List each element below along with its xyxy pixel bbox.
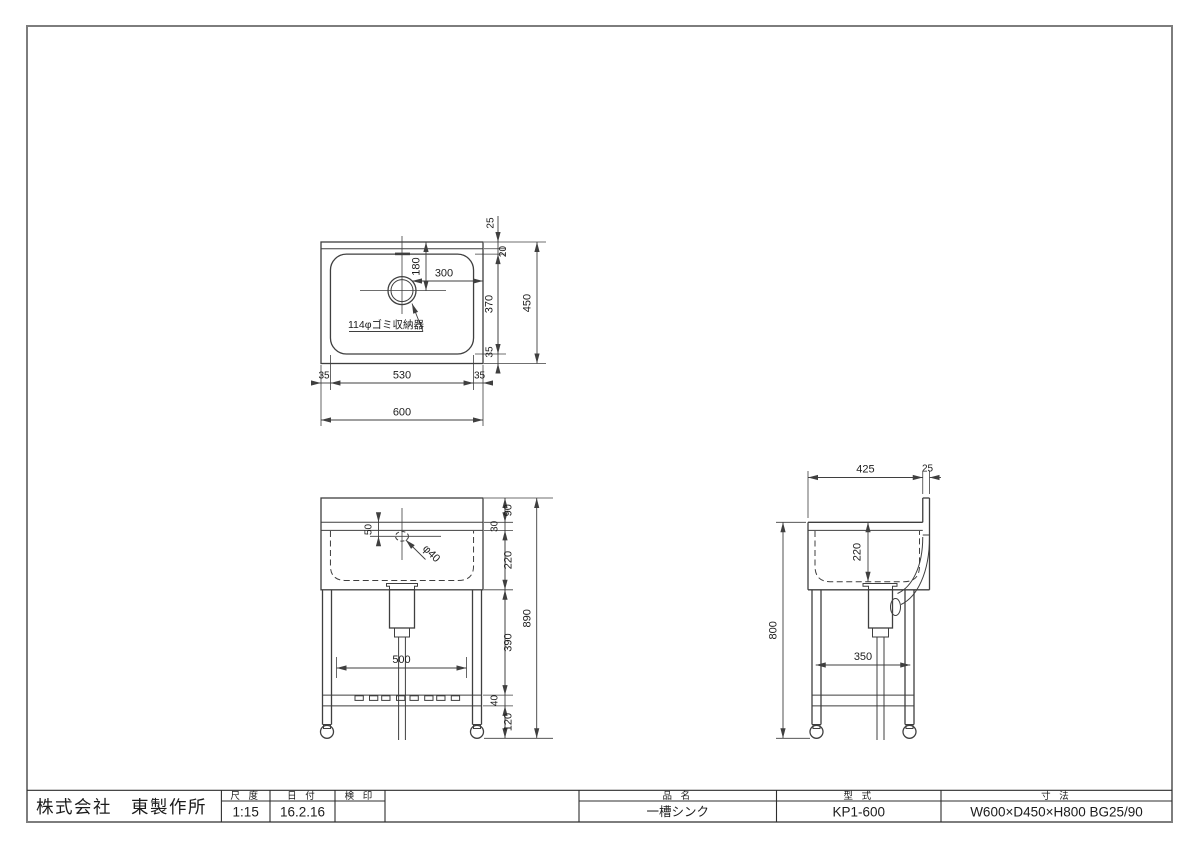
size-label: 寸 法 bbox=[1041, 790, 1072, 802]
top-view-dimensions: 180 300 25 20 370 35 450 bbox=[311, 216, 546, 426]
dim-35-chain: 35 bbox=[485, 346, 496, 358]
title-block: 株式会社 東製作所 尺 度 1:15 日 付 16.2.16 検 印 品 名 一… bbox=[27, 790, 1172, 822]
dim-530: 530 bbox=[393, 370, 411, 382]
side-view: 425 25 220 350 800 bbox=[768, 464, 942, 741]
caster-front-left bbox=[321, 725, 334, 738]
dim-890: 890 bbox=[522, 609, 534, 627]
dim-180: 180 bbox=[411, 257, 423, 275]
dim-450: 450 bbox=[522, 294, 534, 312]
overflow-pipe bbox=[891, 537, 930, 616]
size-value: W600×D450×H800 BG25/90 bbox=[970, 805, 1143, 820]
dim-35-right: 35 bbox=[474, 371, 486, 382]
dim-390: 390 bbox=[503, 633, 515, 651]
dim-35-left: 35 bbox=[318, 371, 330, 382]
size-cell: 寸 法 W600×D450×H800 BG25/90 bbox=[970, 790, 1143, 820]
dim-120: 120 bbox=[503, 713, 515, 731]
dim-30: 30 bbox=[490, 520, 501, 532]
company-name: 株式会社 東製作所 bbox=[36, 797, 207, 817]
product-name-label: 品 名 bbox=[662, 790, 693, 802]
caster-front-right bbox=[471, 725, 484, 738]
drawing-sheet: 114φゴミ収納器 180 300 25 20 370 35 450 bbox=[0, 0, 1200, 849]
model-value: KP1-600 bbox=[833, 805, 886, 820]
dim-phi40: φ40 bbox=[420, 543, 442, 565]
dim-90: 90 bbox=[503, 504, 515, 516]
front-view: 50 φ40 500 90 30 220 390 bbox=[321, 498, 554, 740]
caster-side-left bbox=[810, 725, 823, 738]
dim-370: 370 bbox=[484, 295, 496, 313]
dim-350: 350 bbox=[854, 651, 872, 663]
model-cell: 型 式 KP1-600 bbox=[833, 790, 886, 820]
dim-40: 40 bbox=[490, 695, 501, 707]
caster-side-right bbox=[903, 725, 916, 738]
cad-drawing-svg: 114φゴミ収納器 180 300 25 20 370 35 450 bbox=[0, 0, 1200, 849]
dim-600: 600 bbox=[393, 407, 411, 419]
legs-side bbox=[810, 590, 916, 739]
date-value: 16.2.16 bbox=[280, 805, 325, 820]
date-cell: 日 付 16.2.16 bbox=[280, 791, 325, 820]
model-label: 型 式 bbox=[843, 790, 874, 802]
dim-220-side: 220 bbox=[852, 543, 864, 561]
dim-300: 300 bbox=[435, 268, 453, 280]
product-name-cell: 品 名 一槽シンク bbox=[647, 790, 710, 819]
front-view-dimensions: 50 φ40 500 90 30 220 390 bbox=[337, 498, 554, 738]
stamp-cell: 検 印 bbox=[345, 790, 376, 802]
product-name-value: 一槽シンク bbox=[647, 805, 710, 819]
dim-25-top: 25 bbox=[486, 217, 497, 229]
dim-50: 50 bbox=[364, 524, 375, 536]
dim-425: 425 bbox=[856, 464, 874, 476]
dim-800: 800 bbox=[768, 621, 780, 639]
shelf-side bbox=[812, 695, 914, 706]
drain-note: 114φゴミ収納器 bbox=[348, 304, 425, 332]
dim-25-side: 25 bbox=[922, 464, 934, 475]
scale-label: 尺 度 bbox=[230, 790, 261, 802]
shelf-front bbox=[323, 695, 482, 706]
drain-note-label: 114φゴミ収納器 bbox=[348, 318, 425, 331]
stamp-label: 検 印 bbox=[345, 790, 376, 802]
top-view: 114φゴミ収納器 180 300 25 20 370 35 450 bbox=[311, 216, 546, 426]
scale-value: 1:15 bbox=[233, 805, 259, 820]
dim-20-top: 20 bbox=[498, 246, 509, 258]
scale-cell: 尺 度 1:15 bbox=[230, 790, 261, 820]
date-label: 日 付 bbox=[287, 791, 318, 802]
dim-500: 500 bbox=[392, 654, 410, 666]
side-view-dimensions: 425 25 220 350 800 bbox=[768, 464, 942, 739]
dim-220-front: 220 bbox=[503, 551, 515, 569]
page-border-frame bbox=[27, 26, 1172, 822]
